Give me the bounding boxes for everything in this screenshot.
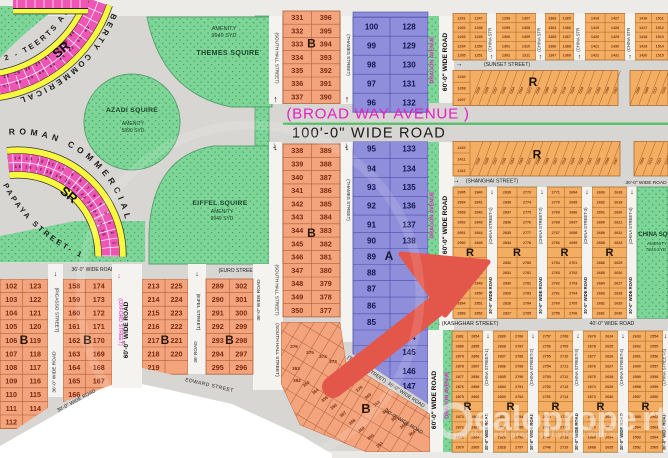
- svg-text:→: →: [456, 61, 463, 68]
- svg-text:2701: 2701: [569, 261, 577, 265]
- svg-text:1250: 1250: [474, 44, 482, 48]
- svg-text:2792: 2792: [515, 395, 523, 399]
- svg-text:118: 118: [29, 349, 41, 358]
- svg-text:2789: 2789: [515, 365, 523, 369]
- svg-text:2768: 2768: [552, 221, 560, 225]
- svg-text:1249: 1249: [474, 35, 482, 39]
- svg-text:2783: 2783: [523, 291, 531, 295]
- svg-text:1364: 1364: [548, 26, 557, 30]
- svg-text:2704: 2704: [569, 291, 578, 295]
- svg-text:1417: 1417: [639, 26, 647, 30]
- svg-text:(CHINA STR: (CHINA STR: [537, 28, 542, 52]
- svg-text:↓: ↓: [585, 189, 589, 196]
- svg-text:2854: 2854: [471, 334, 480, 338]
- svg-text:135: 135: [402, 183, 416, 192]
- svg-text:2557: 2557: [650, 365, 658, 369]
- svg-text:B: B: [307, 37, 316, 51]
- svg-text:2829: 2829: [503, 291, 511, 295]
- svg-text:(SUNSET STREET): (SUNSET STREET): [484, 62, 531, 68]
- svg-text:1298: 1298: [502, 16, 510, 20]
- svg-text:2773: 2773: [523, 190, 531, 194]
- svg-text:(SOUTH HALL STREET): (SOUTH HALL STREET): [275, 32, 280, 84]
- svg-text:2857: 2857: [471, 365, 479, 369]
- svg-text:2901: 2901: [457, 231, 465, 235]
- svg-text:216: 216: [148, 322, 160, 331]
- svg-text:381: 381: [320, 253, 332, 262]
- svg-text:2836: 2836: [503, 221, 511, 225]
- svg-text:2565: 2565: [650, 445, 658, 449]
- svg-text:289: 289: [212, 281, 224, 290]
- svg-text:2622: 2622: [614, 231, 622, 235]
- svg-text:2708: 2708: [560, 334, 568, 338]
- svg-text:342: 342: [291, 199, 303, 208]
- svg-text:(CHINA STR: (CHINA STR: [576, 28, 581, 52]
- svg-text:2628: 2628: [614, 291, 622, 295]
- svg-text:2603: 2603: [633, 334, 641, 338]
- svg-text:2785: 2785: [523, 312, 531, 316]
- svg-text:344: 344: [291, 226, 303, 235]
- svg-text:112: 112: [5, 417, 17, 426]
- svg-text:2865: 2865: [471, 445, 479, 449]
- svg-text:341: 341: [291, 186, 303, 195]
- svg-text:DRAGON AVENUE: DRAGON AVENUE: [430, 191, 436, 239]
- svg-text:1202: 1202: [457, 26, 465, 30]
- svg-text:2858: 2858: [471, 375, 479, 379]
- svg-text:2688: 2688: [597, 241, 605, 245]
- svg-text:2787: 2787: [515, 344, 523, 348]
- svg-text:2900: 2900: [457, 241, 465, 245]
- svg-text:2698: 2698: [569, 231, 577, 235]
- svg-text:2635: 2635: [605, 445, 613, 449]
- svg-text:↓: ↓: [490, 189, 494, 196]
- svg-text:rt: rt: [642, 400, 667, 438]
- svg-text:2674: 2674: [588, 385, 597, 389]
- svg-text:2843: 2843: [474, 221, 482, 225]
- svg-text:(CHINA STREET-3): (CHINA STREET-3): [574, 348, 579, 385]
- svg-text:393: 393: [320, 53, 332, 62]
- svg-text:1428: 1428: [611, 26, 619, 30]
- svg-text:214: 214: [148, 295, 160, 304]
- svg-text:2838: 2838: [498, 344, 506, 348]
- svg-text:5990 SYD: 5990 SYD: [122, 128, 145, 134]
- svg-text:2625: 2625: [605, 344, 613, 348]
- svg-text:2776: 2776: [523, 221, 531, 225]
- svg-text:2778: 2778: [523, 241, 531, 245]
- svg-text:2905: 2905: [457, 190, 465, 194]
- svg-text:386: 386: [320, 186, 332, 195]
- svg-text:2851: 2851: [474, 301, 482, 305]
- svg-text:2597: 2597: [633, 395, 641, 399]
- svg-text:395: 395: [320, 26, 332, 35]
- svg-text:97: 97: [367, 80, 376, 89]
- svg-text:2834: 2834: [498, 385, 507, 389]
- svg-text:2752: 2752: [543, 385, 551, 389]
- svg-text:2626: 2626: [614, 271, 622, 275]
- svg-text:AMENITY: AMENITY: [211, 209, 234, 215]
- svg-text:353: 353: [292, 366, 300, 371]
- svg-text:2771: 2771: [552, 190, 560, 194]
- svg-text:2833: 2833: [498, 395, 506, 399]
- svg-text:170: 170: [93, 336, 105, 345]
- svg-text:2592: 2592: [633, 445, 641, 449]
- svg-text:1515: 1515: [656, 54, 664, 58]
- svg-text:2630: 2630: [614, 312, 622, 316]
- svg-text:2627: 2627: [614, 281, 622, 285]
- svg-text:373: 373: [329, 359, 337, 364]
- svg-text:1301: 1301: [502, 44, 510, 48]
- svg-text:164: 164: [68, 363, 80, 372]
- svg-text:1310: 1310: [522, 44, 530, 48]
- svg-text:2694: 2694: [569, 190, 578, 194]
- svg-text:2556: 2556: [650, 355, 658, 359]
- svg-text:174: 174: [93, 281, 105, 290]
- svg-text:107: 107: [5, 349, 17, 358]
- svg-text:↓ (KASHGHAR STREET): ↓ (KASHGHAR STREET): [438, 321, 499, 327]
- svg-text:1418: 1418: [591, 16, 599, 20]
- svg-text:2769: 2769: [552, 211, 560, 215]
- svg-text:294: 294: [212, 349, 224, 358]
- svg-text:(CHINA STR: (CHINA STR: [488, 28, 493, 52]
- svg-text:↑: ↑: [578, 54, 582, 61]
- svg-text:1205: 1205: [457, 54, 465, 58]
- svg-text:↓: ↓: [195, 271, 199, 278]
- svg-text:114: 114: [29, 404, 41, 413]
- svg-text:2624: 2624: [605, 334, 614, 338]
- svg-text:109: 109: [5, 377, 17, 386]
- svg-text:115: 115: [29, 390, 41, 399]
- svg-text:1427: 1427: [611, 16, 619, 20]
- svg-text:103: 103: [5, 295, 17, 304]
- svg-text:2904: 2904: [457, 200, 466, 204]
- svg-text:2625: 2625: [614, 261, 622, 265]
- svg-text:1204: 1204: [457, 44, 466, 48]
- svg-text:2770: 2770: [552, 200, 560, 204]
- svg-text:R: R: [606, 247, 614, 259]
- svg-text:298: 298: [235, 336, 247, 345]
- svg-text:→: →: [453, 178, 460, 185]
- svg-text:2755: 2755: [543, 355, 551, 359]
- svg-text:2877: 2877: [456, 375, 464, 379]
- svg-text:↓: ↓: [621, 333, 625, 340]
- svg-text:2856: 2856: [471, 355, 479, 359]
- svg-text:2703: 2703: [569, 281, 577, 285]
- svg-text:2761: 2761: [552, 291, 560, 295]
- svg-text:60'-0" WIDE ROAD: 60'-0" WIDE ROAD: [123, 301, 130, 358]
- svg-text:↓: ↓: [664, 333, 668, 340]
- svg-text:2837: 2837: [498, 355, 506, 359]
- svg-text:2602: 2602: [633, 344, 641, 348]
- svg-text:173: 173: [93, 295, 105, 304]
- svg-text:(PICASSO STREET): (PICASSO STREET): [54, 288, 60, 333]
- svg-text:223: 223: [171, 309, 183, 318]
- svg-text:2844: 2844: [474, 231, 483, 235]
- svg-text:297: 297: [235, 349, 247, 358]
- svg-text:105: 105: [5, 322, 17, 331]
- svg-text:1512: 1512: [656, 26, 664, 30]
- svg-text:2852: 2852: [474, 312, 482, 316]
- svg-text:30'-0" WIDE ROAD: 30'-0" WIDE ROAD: [538, 277, 543, 314]
- svg-text:2893: 2893: [457, 312, 465, 316]
- svg-text:213: 213: [148, 281, 160, 290]
- svg-text:1511: 1511: [656, 16, 664, 20]
- svg-text:2859: 2859: [471, 385, 479, 389]
- svg-text:B: B: [307, 226, 316, 240]
- svg-text:1247: 1247: [474, 16, 482, 20]
- svg-text:↓: ↓: [117, 273, 121, 280]
- svg-text:↓: ↓: [630, 189, 634, 196]
- svg-text:110: 110: [5, 390, 17, 399]
- svg-text:162: 162: [68, 336, 80, 345]
- svg-text:374: 374: [319, 354, 327, 359]
- svg-text:2559: 2559: [650, 385, 658, 389]
- svg-text:2756: 2756: [543, 344, 551, 348]
- svg-text:100: 100: [365, 23, 379, 32]
- svg-text:2879: 2879: [456, 355, 464, 359]
- svg-text:AMENITY: AMENITY: [122, 121, 145, 127]
- svg-text:1416: 1416: [639, 16, 647, 20]
- svg-text:↑: ↑: [273, 94, 278, 104]
- svg-text:350: 350: [291, 306, 303, 315]
- svg-text:↓: ↓: [54, 271, 58, 278]
- svg-text:134: 134: [402, 164, 416, 173]
- svg-text:↑: ↑: [345, 94, 350, 104]
- svg-text:291: 291: [212, 309, 224, 318]
- svg-text:2686: 2686: [597, 261, 605, 265]
- svg-text:(EIFEL STREET): (EIFEL STREET): [195, 294, 201, 331]
- svg-text:2714: 2714: [560, 395, 569, 399]
- svg-text:2630: 2630: [605, 395, 613, 399]
- svg-text:60'-0" WIDE ROAD: 60'-0" WIDE ROAD: [442, 196, 449, 254]
- svg-text:343: 343: [291, 213, 303, 222]
- svg-text:90: 90: [367, 237, 376, 246]
- svg-text:AZADI SQUIRE: AZADI SQUIRE: [106, 107, 158, 114]
- svg-text:87: 87: [367, 285, 376, 294]
- svg-text:119: 119: [29, 336, 41, 345]
- svg-text:345: 345: [291, 239, 303, 248]
- svg-text:2781: 2781: [523, 271, 531, 275]
- svg-text:2784: 2784: [523, 301, 532, 305]
- svg-text:387: 387: [320, 173, 332, 182]
- svg-text:217: 217: [148, 336, 160, 345]
- svg-text:2766: 2766: [552, 241, 560, 245]
- svg-text:↓: ↓: [531, 333, 535, 340]
- svg-text:2791: 2791: [515, 385, 523, 389]
- svg-text:(SOUTH HALL STREET): (SOUTH HALL STREET): [274, 323, 280, 377]
- svg-text:2676: 2676: [588, 365, 596, 369]
- svg-text:392: 392: [320, 66, 332, 75]
- svg-text:221: 221: [171, 336, 183, 345]
- svg-text:333: 333: [291, 40, 303, 49]
- svg-text:2835: 2835: [503, 231, 511, 235]
- svg-text:2751: 2751: [543, 395, 551, 399]
- svg-text:(CHINA STREET-4): (CHINA STREET-4): [619, 348, 624, 385]
- svg-text:1420: 1420: [591, 35, 599, 39]
- svg-text:2880: 2880: [456, 344, 464, 348]
- svg-text:2702: 2702: [569, 271, 577, 275]
- svg-text:1208: 1208: [457, 87, 465, 91]
- svg-text:B: B: [225, 333, 234, 347]
- svg-text:85: 85: [367, 318, 376, 327]
- svg-text:1365: 1365: [563, 16, 571, 20]
- svg-text:349: 349: [291, 293, 303, 302]
- svg-text:2692: 2692: [597, 200, 605, 204]
- svg-text:331: 331: [291, 13, 303, 22]
- svg-text:348: 348: [291, 279, 303, 288]
- svg-text:R: R: [561, 247, 569, 259]
- svg-text:130: 130: [402, 61, 416, 70]
- svg-text:(CHINA STREET-1): (CHINA STREET-1): [488, 207, 493, 244]
- svg-text:2762: 2762: [552, 281, 560, 285]
- svg-text:99: 99: [367, 42, 376, 51]
- svg-text:2679: 2679: [588, 334, 596, 338]
- svg-text:1201: 1201: [457, 16, 465, 20]
- svg-text:(CHINA STREET-2): (CHINA STREET-2): [529, 348, 534, 385]
- svg-text:2690: 2690: [597, 221, 605, 225]
- svg-text:1251: 1251: [474, 54, 482, 58]
- svg-text:2599: 2599: [633, 375, 641, 379]
- svg-text:111: 111: [6, 404, 17, 413]
- svg-text:2628: 2628: [605, 375, 613, 379]
- svg-text:THEMES SQUIRE: THEMES SQUIRE: [196, 50, 259, 57]
- svg-text:2558: 2558: [650, 375, 658, 379]
- svg-text:2620: 2620: [614, 211, 622, 215]
- svg-text:↓: ↓: [486, 333, 490, 340]
- svg-text:131: 131: [402, 80, 416, 89]
- svg-text:1420: 1420: [639, 54, 647, 58]
- svg-text:2850: 2850: [474, 291, 482, 295]
- svg-text:2699: 2699: [569, 241, 577, 245]
- svg-text:172: 172: [93, 309, 105, 318]
- svg-text:2839: 2839: [498, 334, 506, 338]
- svg-text:1419: 1419: [591, 26, 599, 30]
- svg-text:218: 218: [148, 349, 160, 358]
- svg-text:2774: 2774: [523, 200, 532, 204]
- svg-text:2695: 2695: [569, 200, 577, 204]
- svg-text:R: R: [529, 75, 538, 89]
- svg-text:CHINA SQU: CHINA SQU: [638, 232, 668, 238]
- svg-text:106: 106: [5, 336, 17, 345]
- svg-text:394: 394: [320, 40, 332, 49]
- svg-text:2849: 2849: [474, 281, 482, 285]
- svg-text:104: 104: [5, 309, 17, 318]
- svg-text:2621: 2621: [614, 221, 622, 225]
- svg-text:B: B: [161, 333, 170, 347]
- svg-text:2860: 2860: [471, 395, 479, 399]
- svg-text:2902: 2902: [457, 221, 465, 225]
- svg-text:(THAMES STREET): (THAMES STREET): [346, 34, 351, 76]
- svg-text:R: R: [513, 247, 521, 259]
- svg-text:302: 302: [235, 281, 247, 290]
- svg-text:1366: 1366: [563, 26, 571, 30]
- svg-text:120: 120: [29, 322, 41, 331]
- svg-text:1368: 1368: [563, 44, 571, 48]
- svg-text:(SHANGHAI STREET): (SHANGHAI STREET): [466, 179, 519, 185]
- svg-text:86: 86: [367, 301, 376, 310]
- svg-text:380: 380: [320, 266, 332, 275]
- svg-text:1514: 1514: [656, 44, 665, 48]
- svg-text:2875: 2875: [456, 395, 464, 399]
- svg-text:2788: 2788: [515, 355, 523, 359]
- svg-text:122: 122: [29, 295, 41, 304]
- svg-text:2678: 2678: [588, 344, 596, 348]
- svg-text:AMENITY: AMENITY: [647, 241, 667, 246]
- svg-text:1418: 1418: [639, 35, 647, 39]
- svg-text:(CHINA STREET-3): (CHINA STREET-3): [583, 207, 588, 244]
- svg-text:1411: 1411: [458, 157, 466, 161]
- svg-text:116: 116: [29, 377, 41, 386]
- svg-text:388: 388: [320, 160, 332, 169]
- svg-text:123: 123: [29, 281, 41, 290]
- svg-text:1240: 1240: [457, 75, 465, 79]
- svg-text:1311: 1311: [522, 54, 530, 58]
- svg-text:383: 383: [320, 226, 332, 235]
- svg-text:379: 379: [320, 279, 332, 288]
- svg-text:301: 301: [235, 295, 247, 304]
- svg-text:(THAMES STREET): (THAMES STREET): [346, 179, 351, 221]
- svg-text:(CHINA STREET-4): (CHINA STREET-4): [628, 207, 633, 244]
- svg-text:377: 377: [320, 306, 332, 315]
- svg-text:95: 95: [367, 145, 376, 154]
- svg-text:2797: 2797: [515, 445, 523, 449]
- svg-text:396: 396: [320, 13, 332, 22]
- svg-text:89: 89: [367, 252, 376, 261]
- svg-text:1513: 1513: [656, 35, 664, 39]
- svg-text:98: 98: [367, 61, 376, 70]
- svg-text:36'-0" WIDE ROAD: 36'-0" WIDE ROAD: [256, 279, 262, 321]
- svg-text:2876: 2876: [456, 385, 464, 389]
- svg-text:2830: 2830: [503, 281, 511, 285]
- svg-text:1203: 1203: [457, 35, 465, 39]
- svg-text:2828: 2828: [503, 301, 511, 305]
- svg-text:2709: 2709: [560, 344, 568, 348]
- svg-text:(CHINA STR: (CHINA STR: [626, 28, 631, 52]
- svg-text:Find the best property listing: Find the best property listings with us: [448, 429, 621, 439]
- svg-text:R: R: [466, 247, 474, 259]
- svg-text:385: 385: [320, 199, 332, 208]
- svg-text:2878: 2878: [456, 365, 464, 369]
- svg-text:(CHINA STREET-2): (CHINA STREET-2): [538, 207, 543, 244]
- svg-text:2719: 2719: [560, 445, 568, 449]
- svg-text:1248: 1248: [474, 26, 482, 30]
- svg-text:40'-0" WIDE ROAD: 40'-0" WIDE ROAD: [590, 321, 635, 327]
- svg-text:(EURO STREET): (EURO STREET): [219, 268, 258, 274]
- svg-text:2831: 2831: [503, 271, 511, 275]
- svg-text:2713: 2713: [560, 385, 568, 389]
- svg-text:1207: 1207: [457, 98, 465, 102]
- svg-text:2619: 2619: [614, 200, 622, 204]
- svg-text:2828: 2828: [498, 445, 506, 449]
- svg-text:1307: 1307: [522, 16, 530, 20]
- svg-text:2598: 2598: [633, 385, 641, 389]
- svg-text:2837: 2837: [503, 211, 511, 215]
- svg-text:A: A: [385, 249, 394, 263]
- svg-text:332: 332: [291, 26, 303, 35]
- svg-text:2764: 2764: [552, 261, 561, 265]
- svg-text:2684: 2684: [597, 281, 606, 285]
- svg-text:2623: 2623: [614, 241, 622, 245]
- svg-text:215: 215: [148, 309, 160, 318]
- svg-text:↓: ↓: [540, 189, 544, 196]
- svg-text:165: 165: [68, 377, 80, 386]
- svg-text:2827: 2827: [503, 312, 511, 316]
- svg-text:2685: 2685: [597, 271, 605, 275]
- svg-text:133: 133: [402, 145, 416, 154]
- svg-text:352: 352: [293, 378, 301, 383]
- svg-text:391: 391: [320, 79, 332, 88]
- svg-text:2681: 2681: [597, 312, 605, 316]
- svg-text:2675: 2675: [588, 375, 596, 379]
- svg-text:2780: 2780: [523, 261, 531, 265]
